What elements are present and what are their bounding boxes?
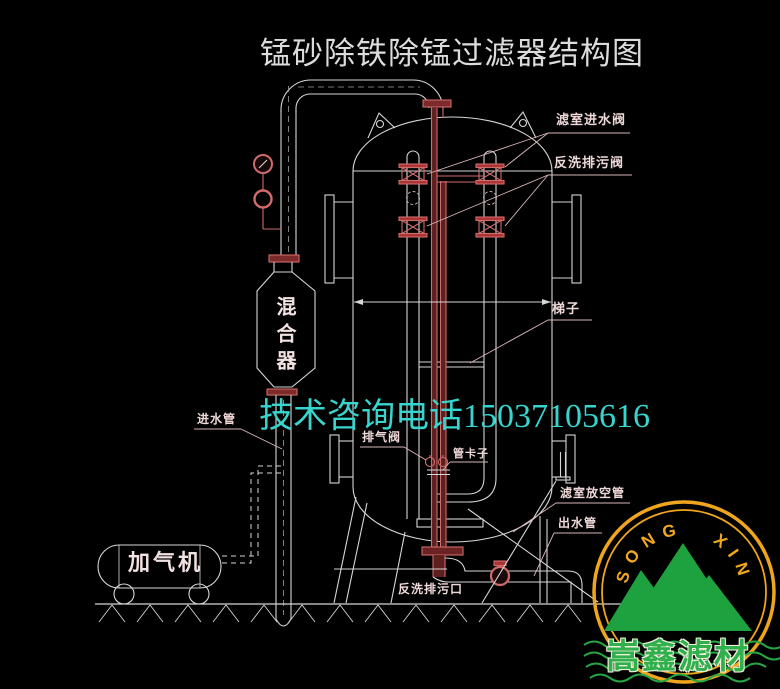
mixer-label: 混合器 xyxy=(274,296,294,377)
drain-tee-red xyxy=(422,547,463,577)
watermark-phone: 技术咨询电话15037105616 xyxy=(259,400,650,434)
central-distribution-pipes xyxy=(432,108,485,547)
label-filter-chamber-vent-pipe: 滤室放空管 xyxy=(560,487,625,499)
filter-structure-diagram: SONG XIN 锰砂除铁除锰过滤器结构图 技术咨询电话15037105616 … xyxy=(0,0,780,689)
gauge-valve-icon xyxy=(255,191,272,208)
pressure-gauge-assembly xyxy=(254,155,281,229)
label-inlet-pipe: 进水管 xyxy=(197,413,236,425)
label-ladder: 梯子 xyxy=(552,302,580,315)
wheel-icon xyxy=(189,584,209,604)
vent-pipe xyxy=(556,452,570,480)
diagram-title: 锰砂除铁除锰过滤器结构图 xyxy=(260,38,644,69)
label-exhaust-valve: 排气阀 xyxy=(362,431,401,443)
aerator-label: 加气机 xyxy=(128,552,203,574)
leader-lines xyxy=(194,133,632,576)
diagram-canvas: SONG XIN xyxy=(0,0,780,689)
label-backwash-drain-valve: 反洗排污阀 xyxy=(554,156,624,169)
filter-inlet-valve-right-icon xyxy=(476,164,504,184)
logo-company-name: 嵩鑫滤材 xyxy=(606,640,750,674)
backwash-valve-left-icon xyxy=(399,217,427,237)
wheel-icon xyxy=(114,584,134,604)
label-outlet-pipe: 出水管 xyxy=(558,517,597,529)
filter-inlet-valve-left-icon xyxy=(399,164,427,184)
ground-line xyxy=(95,604,640,622)
label-pipe-clamp: 管卡子 xyxy=(453,449,489,460)
label-filter-chamber-inlet-valve: 滤室进水阀 xyxy=(556,113,626,126)
backwash-valve-right-icon xyxy=(476,217,504,237)
lifting-lug-right xyxy=(510,112,536,138)
aerator-connection-pipe xyxy=(222,466,281,563)
sand-level-line xyxy=(354,299,551,305)
lifting-lug-left xyxy=(368,113,395,138)
internal-risers xyxy=(407,151,497,527)
label-backwash-drain-outlet: 反洗排污口 xyxy=(398,583,463,595)
